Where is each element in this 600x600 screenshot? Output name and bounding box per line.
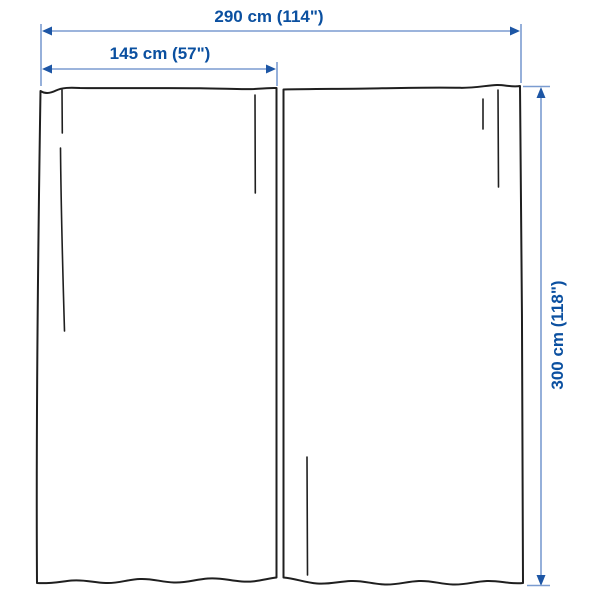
curtain-panel-left bbox=[37, 88, 277, 583]
width-panel-label: 145 cm (57") bbox=[60, 44, 260, 64]
curtain-diagram: 290 cm (114") 145 cm (57") 300 cm (118") bbox=[0, 0, 600, 600]
height-label: 300 cm (118") bbox=[548, 235, 568, 435]
curtain-diagram-canvas bbox=[0, 0, 600, 600]
arrowhead-left-icon bbox=[42, 27, 52, 36]
arrowhead-right-icon bbox=[510, 27, 520, 36]
fold-line-right-bottom bbox=[307, 457, 308, 575]
width-total-label: 290 cm (114") bbox=[169, 7, 369, 27]
arrowhead-down-icon bbox=[537, 575, 546, 586]
arrowhead-right-icon bbox=[266, 65, 276, 74]
arrowhead-up-icon bbox=[537, 87, 546, 98]
curtain-panel-right bbox=[284, 85, 524, 585]
arrowhead-left-icon bbox=[42, 65, 52, 74]
fold-line-right-top-long bbox=[498, 90, 499, 187]
